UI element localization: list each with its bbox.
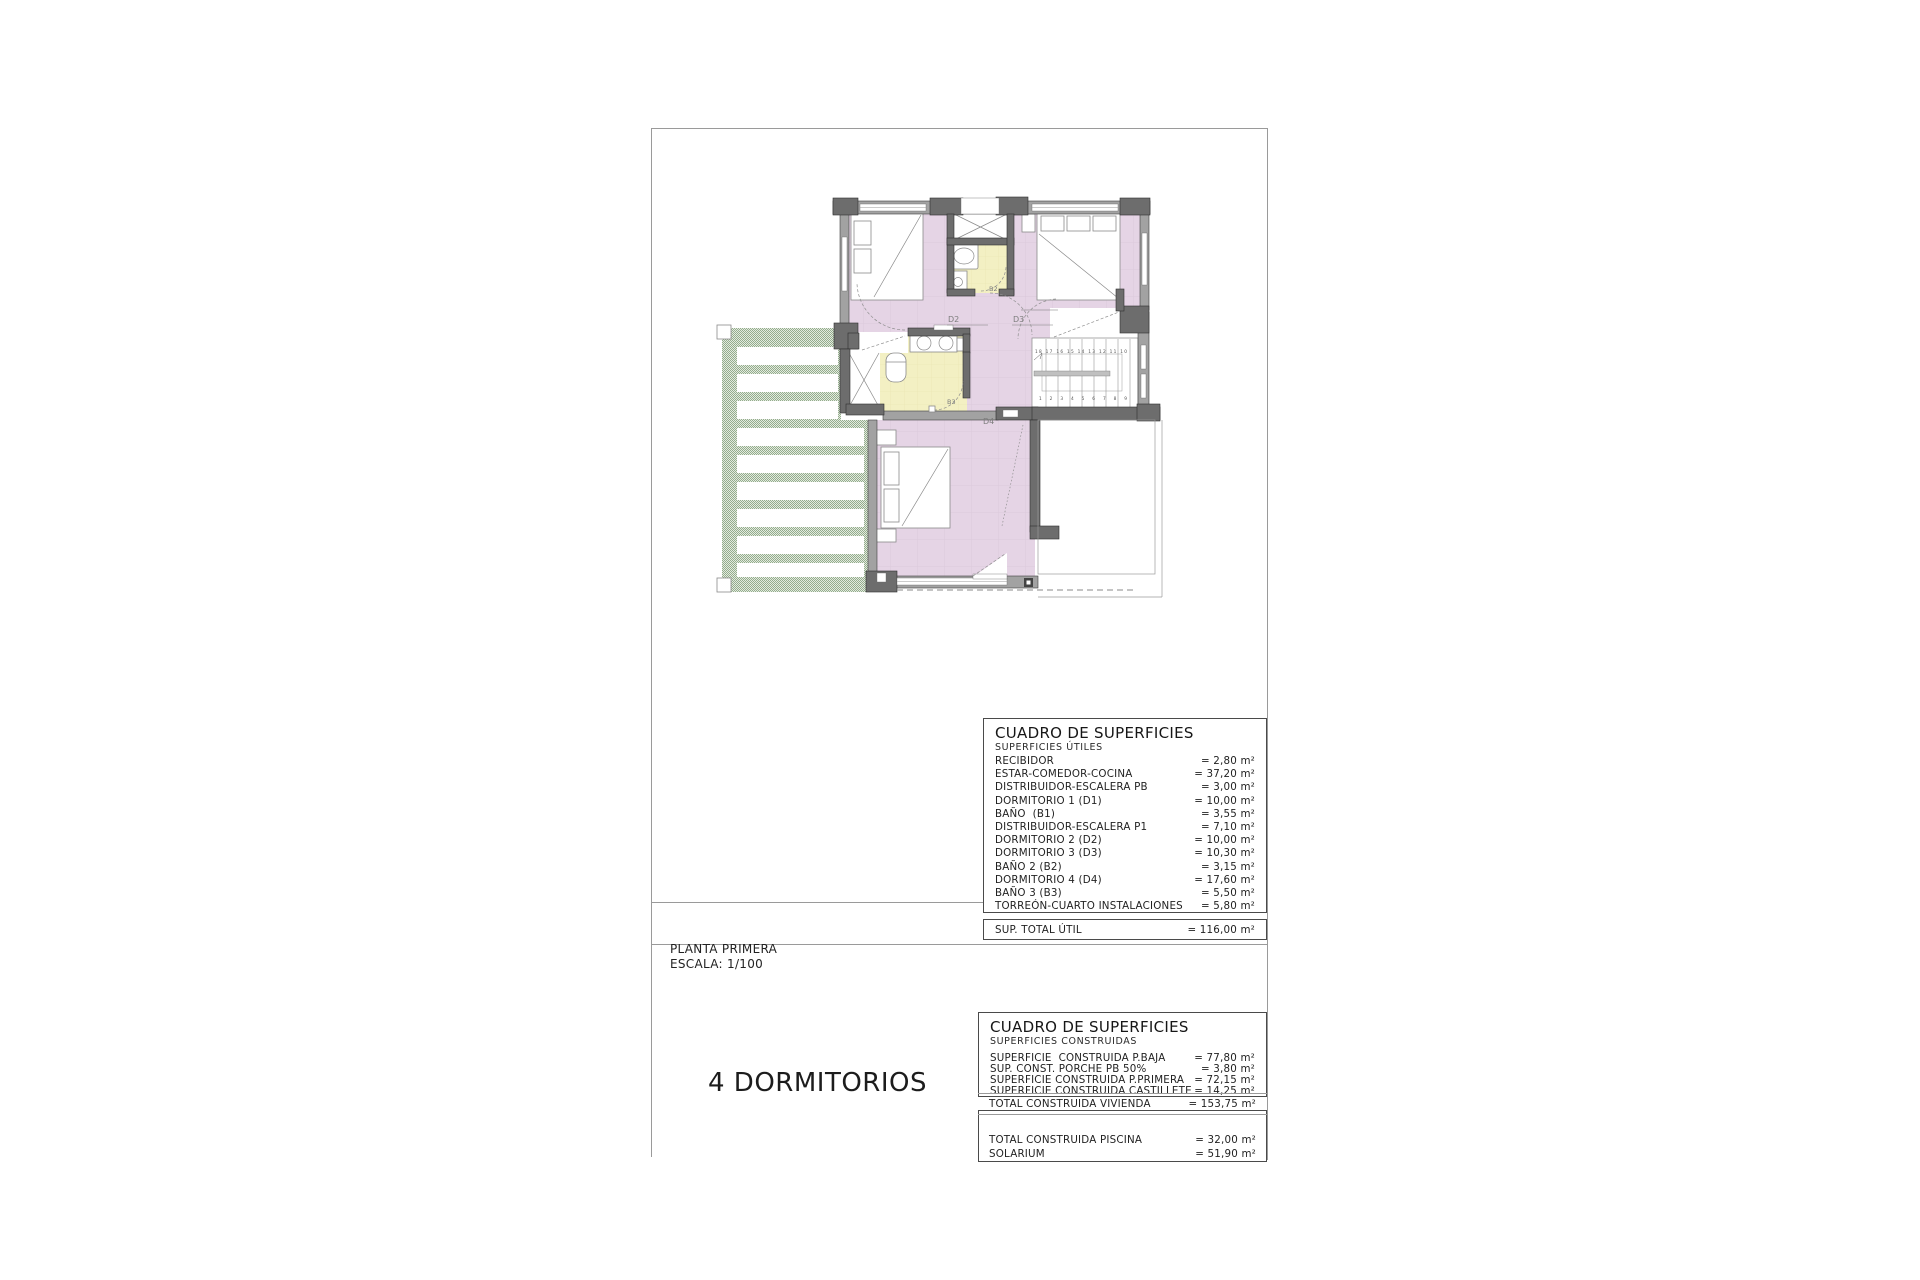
row-label: TOTAL CONSTRUIDA PISCINA [989,1133,1142,1147]
label-b3: B3 [947,398,956,406]
toilet-b3 [886,353,906,382]
table-subtitle: SUPERFICIES ÚTILES [995,742,1103,753]
table-row: DISTRIBUIDOR-ESCALERA P1= 7,10 m² [995,821,1255,834]
table-row: DISTRIBUIDOR-ESCALERA PB= 3,00 m² [995,781,1255,794]
row-label: DORMITORIO 1 (D1) [995,795,1102,808]
row-value: = 32,00 m² [1195,1133,1256,1147]
table-row: DORMITORIO 2 (D2)= 10,00 m² [995,834,1255,847]
row-label: DISTRIBUIDOR-ESCALERA P1 [995,821,1147,834]
row-label: DORMITORIO 2 (D2) [995,834,1102,847]
table-row: TORREÓN-CUARTO INSTALACIONES= 5,80 m² [995,900,1255,913]
table-row: SOLARIUM= 51,90 m² [989,1147,1256,1161]
plan-scale: ESCALA: 1/100 [670,957,777,972]
table-rows: SUPERFICIE CONSTRUIDA P.BAJA= 77,80 m² S… [990,1053,1255,1097]
pergola-post [717,325,731,339]
areas-table-utiles: CUADRO DE SUPERFICIES SUPERFICIES ÚTILES… [983,718,1267,913]
total-hairline [978,1093,1267,1094]
row-value: = 10,00 m² [1194,795,1255,808]
row-value: = 2,80 m² [1201,755,1255,768]
row-value: = 5,50 m² [1201,887,1255,900]
row-value: = 37,20 m² [1194,768,1255,781]
bed-d2 [851,213,923,300]
row-value: = 10,00 m² [1194,834,1255,847]
table-title: CUADRO DE SUPERFICIES [990,1018,1189,1036]
row-label: DORMITORIO 3 (D3) [995,847,1102,860]
row-value: = 3,00 m² [1201,781,1255,794]
row-label: ESTAR-COMEDOR-COCINA [995,768,1132,781]
row-label: DORMITORIO 4 (D4) [995,874,1102,887]
table-row: DORMITORIO 4 (D4)= 17,60 m² [995,874,1255,887]
bedrooms-caption: 4 DORMITORIOS [708,1068,927,1098]
sheet-border-left [651,128,652,1157]
label-d4: D4 [983,417,994,426]
table-row: ESTAR-COMEDOR-COCINA= 37,20 m² [995,768,1255,781]
row-label: TORREÓN-CUARTO INSTALACIONES [995,900,1183,913]
row-value: = 51,90 m² [1195,1147,1256,1161]
total-label: SUP. TOTAL ÚTIL [995,924,1082,936]
table-row: RECIBIDOR= 2,80 m² [995,755,1255,768]
stair-handrail [1034,371,1110,376]
plan-title: PLANTA PRIMERA [670,942,777,957]
bed-d4 [871,430,950,542]
total-value: = 153,75 m² [1188,1098,1256,1110]
table-row: BAÑO 3 (B3)= 5,50 m² [995,887,1255,900]
row-label: BAÑO 3 (B3) [995,887,1062,900]
table-title: CUADRO DE SUPERFICIES [995,724,1194,742]
row-label: BAÑO 2 (B2) [995,861,1062,874]
d3-door-area [1050,308,1122,340]
total-util-row: SUP. TOTAL ÚTIL = 116,00 m² [983,919,1267,940]
label-d3: D3 [1013,315,1024,324]
row-label: RECIBIDOR [995,755,1054,768]
table-rows: RECIBIDOR= 2,80 m² ESTAR-COMEDOR-COCINA=… [995,755,1255,913]
total-vivienda-row: TOTAL CONSTRUIDA VIVIENDA = 153,75 m² [978,1096,1267,1111]
label-d2: D2 [948,315,959,324]
stair-numbers-upper: 18 17 16 15 14 13 12 11 10 [1035,349,1127,355]
floor-plan: 18 17 16 15 14 13 12 11 10 1 2 3 4 5 6 7… [700,150,1180,620]
label-b2: B2 [989,285,998,293]
table-row: DORMITORIO 1 (D1)= 10,00 m² [995,795,1255,808]
table-row: TOTAL CONSTRUIDA PISCINA= 32,00 m² [989,1133,1256,1147]
row-value: = 3,55 m² [1201,808,1255,821]
total-label: TOTAL CONSTRUIDA VIVIENDA [989,1098,1151,1110]
row-label: BAÑO (B1) [995,808,1055,821]
pergola-post [717,578,731,592]
table-subtitle: SUPERFICIES CONSTRUIDAS [990,1036,1137,1047]
total-hairline [978,1114,1267,1115]
row-value: = 7,10 m² [1201,821,1255,834]
bed-d3 [1022,213,1120,300]
row-value: = 5,80 m² [1201,900,1255,913]
stair-numbers-lower: 1 2 3 4 5 6 7 8 9 [1039,396,1127,402]
table-row: BAÑO (B1)= 3,55 m² [995,808,1255,821]
row-value: = 10,30 m² [1194,847,1255,860]
total-value: = 116,00 m² [1187,924,1255,936]
row-label: SOLARIUM [989,1147,1045,1161]
terrace [1038,420,1155,575]
table-row: BAÑO 2 (B2)= 3,15 m² [995,861,1255,874]
drawing-sheet: 18 17 16 15 14 13 12 11 10 1 2 3 4 5 6 7… [0,0,1920,1280]
row-value: = 17,60 m² [1194,874,1255,887]
double-washbasin [910,334,957,352]
sheet-border-top [651,128,1268,129]
title-block: PLANTA PRIMERA ESCALA: 1/100 [670,942,777,972]
plan-area-divider [651,902,983,903]
row-label: DISTRIBUIDOR-ESCALERA PB [995,781,1148,794]
extra-rows: TOTAL CONSTRUIDA PISCINA= 32,00 m² SOLAR… [989,1133,1256,1161]
row-value: = 3,15 m² [1201,861,1255,874]
sheet-border-right [1267,128,1268,1160]
table-row: DORMITORIO 3 (D3)= 10,30 m² [995,847,1255,860]
